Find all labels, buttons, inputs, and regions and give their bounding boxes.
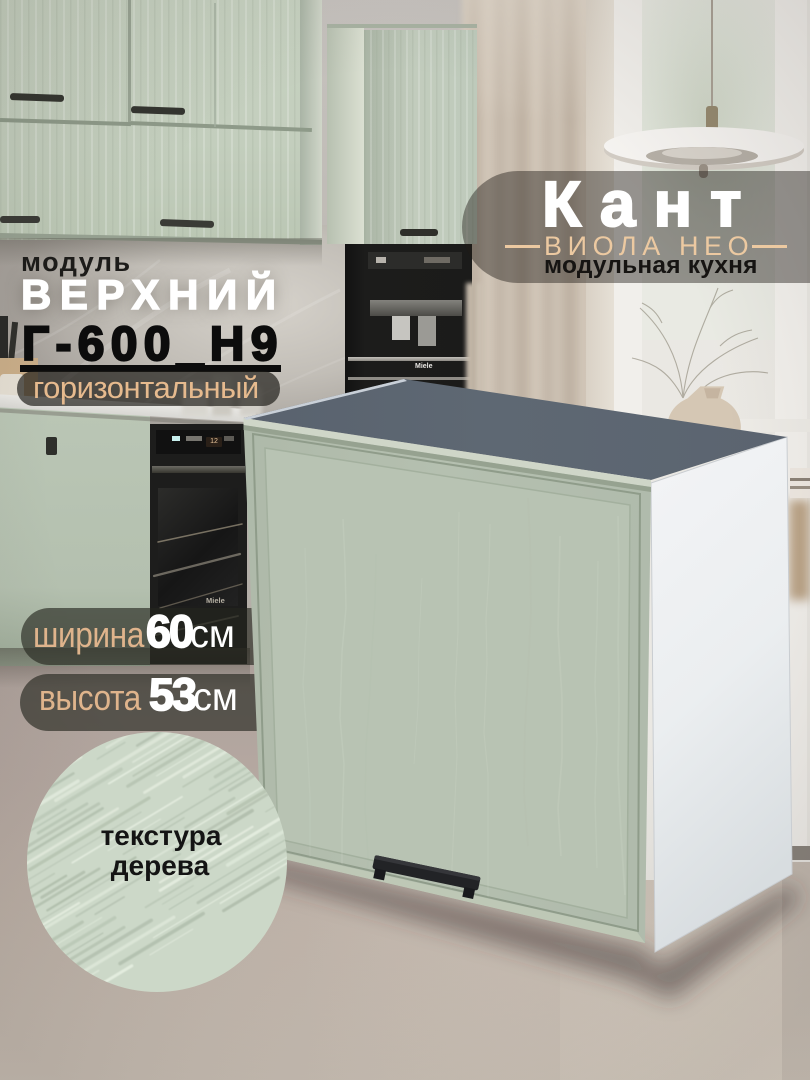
svg-text:текстура: текстура: [101, 820, 222, 851]
svg-text:дерева: дерева: [111, 850, 210, 881]
